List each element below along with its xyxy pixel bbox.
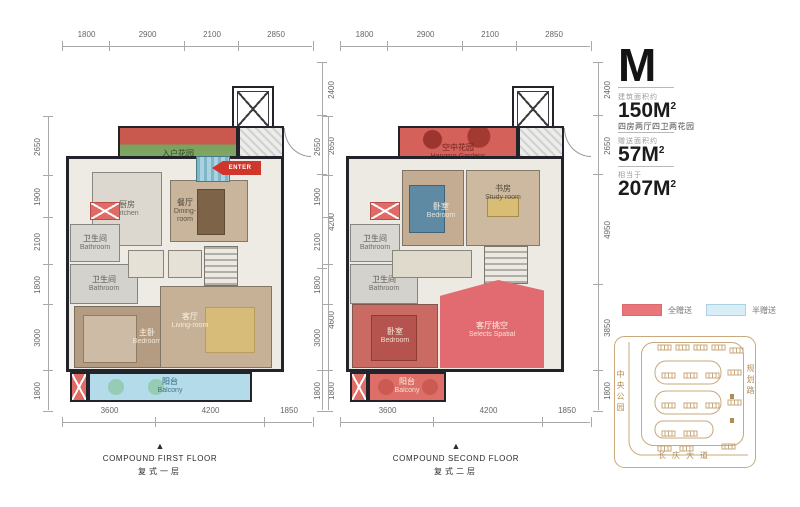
dim-label: 4200 [156, 406, 265, 415]
elevator-x-icon [517, 91, 549, 127]
dim-segment: 4200 [433, 417, 543, 427]
dim-label: 2100 [463, 30, 517, 39]
entry-porch [238, 126, 284, 158]
dim-label: 2400 [328, 81, 336, 99]
dim-segment: 1900 [323, 175, 333, 218]
duct-box [90, 202, 120, 220]
dim-segment: 1900 [43, 175, 53, 218]
room-bedroom-2 [352, 304, 438, 368]
room-study [466, 170, 540, 246]
dim-segment: 1850 [542, 417, 592, 427]
dim-segment: 3850 [593, 284, 603, 371]
road-label-bottom: 长庆大道 [646, 452, 726, 460]
elevator-x-icon [237, 91, 269, 127]
duct-box [370, 202, 400, 220]
dim-label: 1850 [543, 406, 591, 415]
legend-label-full-gift: 全赠送 [668, 305, 692, 316]
caption-marker: ▲ [386, 442, 526, 451]
room-living-void [440, 280, 544, 368]
hall-rug [168, 250, 202, 278]
living-rug [205, 307, 255, 353]
dim-segment: 1800 [43, 264, 53, 305]
area-value-total: 207M2 [618, 178, 676, 199]
divider [618, 132, 674, 133]
dim-label: 2650 [34, 138, 42, 156]
dim-label: 2850 [239, 30, 313, 39]
study-rug [487, 197, 519, 217]
dim-segment: 3000 [323, 304, 333, 371]
legend: 全赠送 半赠送 [622, 304, 784, 316]
dim-label: 3850 [604, 319, 612, 337]
divider [618, 87, 674, 88]
dim-label: 4200 [434, 406, 543, 415]
dim-label: 1900 [314, 188, 322, 206]
room-dining [170, 180, 248, 242]
stairs [484, 246, 528, 284]
plant-icon [108, 379, 124, 395]
dim-segment: 2900 [109, 41, 185, 51]
plant-icon [148, 379, 164, 395]
plan1-caption-en: COMPOUND FIRST FLOOR [90, 454, 230, 463]
room-balcony [368, 372, 446, 402]
unit-name: M [618, 42, 656, 88]
bed [371, 315, 417, 361]
bed [83, 315, 137, 363]
bed [409, 185, 445, 233]
dim-segment: 2400 [593, 62, 603, 116]
dim-label: 2900 [110, 30, 185, 39]
legend-swatch-full-gift [622, 304, 662, 316]
dim-segment: 2650 [593, 115, 603, 175]
dim-segment: 3600 [62, 417, 156, 427]
road-label-right: 规划路 [746, 364, 754, 397]
dim-segment: 1800 [323, 264, 333, 305]
site-plan: 中央公园 规划路 长庆大道 [612, 334, 760, 474]
dim-label: 2900 [388, 30, 463, 39]
room-living [160, 286, 272, 368]
legend-swatch-half-gift [706, 304, 746, 316]
stairs [204, 246, 238, 286]
dim-label: 1800 [314, 276, 322, 294]
area-value-gift: 57M2 [618, 144, 664, 165]
dim-segment: 2100 [43, 217, 53, 265]
unit-description: 四房两厅四卫两花园 [618, 121, 695, 132]
dim-label: 2100 [185, 30, 239, 39]
dim-segment: 2900 [387, 41, 463, 51]
dim-label: 4950 [604, 221, 612, 239]
dim-label: 3000 [34, 329, 42, 347]
dim-label: 3000 [314, 329, 322, 347]
hall-rug [128, 250, 164, 278]
dim-label: 2100 [34, 233, 42, 251]
dim-segment: 2400 [317, 62, 327, 116]
dim-segment: 2650 [323, 116, 333, 176]
hall-rug [392, 250, 472, 278]
dim-segment: 4200 [155, 417, 265, 427]
entry-porch [518, 126, 564, 158]
divider [618, 166, 674, 167]
entry-door-arc [564, 128, 591, 157]
dim-label: 1900 [34, 188, 42, 206]
dim-segment: 1850 [264, 417, 314, 427]
dim-segment: 4950 [593, 174, 603, 285]
dim-label: 1800 [341, 30, 388, 39]
dim-segment: 3000 [43, 304, 53, 371]
dim-segment: 1800 [43, 370, 53, 412]
dim-segment: 2100 [184, 41, 239, 51]
dining-table [197, 189, 225, 235]
area-value-built: 150M2 [618, 100, 676, 121]
legend-label-half-gift: 半赠送 [752, 305, 776, 316]
dim-label: 2100 [314, 233, 322, 251]
dim-segment: 2850 [238, 41, 314, 51]
dim-label: 3600 [341, 406, 434, 415]
dim-segment: 2100 [323, 217, 333, 265]
plant-icon [378, 379, 394, 395]
dim-segment: 1800 [340, 41, 388, 51]
plant-icon [422, 379, 438, 395]
dim-segment: 2650 [43, 116, 53, 176]
dim-label: 2650 [314, 138, 322, 156]
dim-segment: 2850 [516, 41, 592, 51]
dim-label: 1800 [34, 276, 42, 294]
plan1-caption: ▲ COMPOUND FIRST FLOOR 复式一层 [90, 442, 230, 477]
room-bathroom-1 [70, 224, 120, 262]
dim-label: 1800 [604, 382, 612, 400]
balcony-duct [350, 372, 368, 402]
dim-segment: 3600 [340, 417, 434, 427]
caption-marker: ▲ [90, 442, 230, 451]
dim-segment: 1800 [593, 370, 603, 412]
plan2-caption-cn: 复式二层 [386, 466, 526, 477]
dim-label: 2650 [604, 137, 612, 155]
dim-segment: 2100 [462, 41, 517, 51]
floorplan-sheet: 1800 2900 2100 2850 3600 4200 1850 2650 … [0, 0, 800, 507]
plan2-caption-en: COMPOUND SECOND FLOOR [386, 454, 526, 463]
dim-label: 1850 [265, 406, 313, 415]
dim-label: 1800 [34, 382, 42, 400]
dim-segment: 1800 [62, 41, 110, 51]
dim-label: 2400 [604, 81, 612, 99]
plan2-caption: ▲ COMPOUND SECOND FLOOR 复式二层 [386, 442, 526, 477]
road-label-left: 中央公园 [616, 370, 624, 414]
balcony-duct [70, 372, 88, 402]
room-balcony [88, 372, 252, 402]
dim-label: 1800 [63, 30, 110, 39]
dim-label: 2850 [517, 30, 591, 39]
plan1-caption-cn: 复式一层 [90, 466, 230, 477]
dim-segment: 1800 [323, 370, 333, 412]
entry-door-arc [284, 128, 311, 157]
room-bedroom [402, 170, 464, 246]
dim-label: 1800 [314, 382, 322, 400]
dim-label: 3600 [63, 406, 156, 415]
